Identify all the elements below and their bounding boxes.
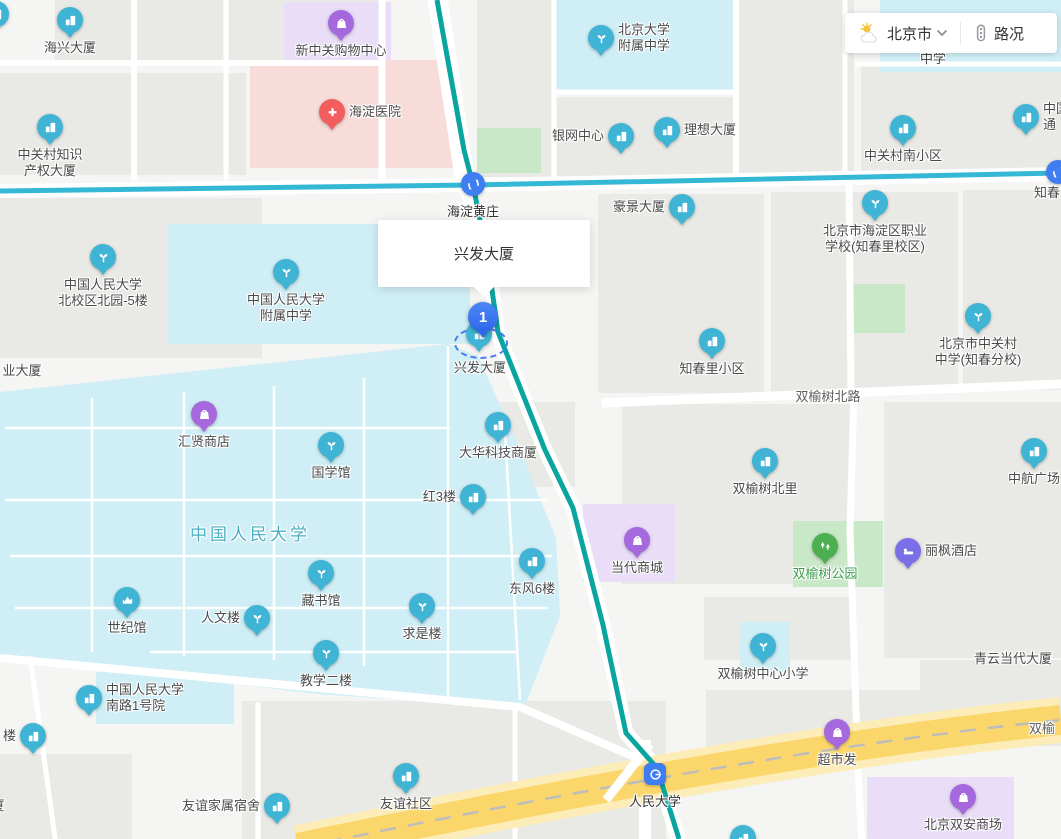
building-icon [1019, 110, 1034, 125]
park-icon [818, 539, 833, 554]
map-controls: 北京市 路况 [845, 13, 1057, 53]
haidian-vocational-school-pin[interactable] [862, 190, 888, 216]
shuangyushu-park-pin[interactable] [812, 533, 838, 559]
school-icon [324, 438, 339, 453]
building-icon [82, 691, 97, 706]
zhonghang-plaza-pin[interactable] [1021, 438, 1047, 464]
shuangyushu-beili-pin[interactable] [752, 448, 778, 474]
renwenlou-pin[interactable] [244, 605, 270, 631]
building-icon [736, 831, 751, 839]
building-icon [270, 799, 285, 814]
traffic-light-icon [973, 24, 989, 42]
haidian-hospital-pin[interactable] [319, 99, 345, 125]
school-icon [415, 599, 430, 614]
shop-icon [956, 790, 971, 805]
beijing-shuangan-mall-pin[interactable] [950, 784, 976, 810]
dangdai-mall-pin[interactable] [624, 527, 650, 553]
building-icon [1027, 444, 1042, 459]
jiaoxue-er-lou-pin[interactable] [313, 640, 339, 666]
weather-icon [857, 22, 881, 44]
building-icon [466, 490, 481, 505]
school-icon [314, 566, 329, 581]
school-icon [96, 250, 111, 265]
building-icon [896, 121, 911, 136]
building-icon [660, 123, 675, 138]
zgc-middle-school-zhichun-pin[interactable] [965, 303, 991, 329]
building-icon [525, 554, 540, 569]
divider [960, 22, 961, 44]
shop-icon [630, 533, 645, 548]
edge-building-topright-pin[interactable] [1013, 104, 1039, 130]
map[interactable]: 海兴大厦新中关购物中心海淀医院中关村知识产权大厦北京大学附属中学中学银网中心理想… [0, 0, 1061, 839]
hospital-icon [325, 105, 340, 120]
school-icon [250, 611, 265, 626]
school-icon [319, 646, 334, 661]
building-icon [63, 13, 78, 28]
building-icon [43, 120, 58, 135]
xinzhongguan-mall-pin[interactable] [328, 10, 354, 36]
building-icon [26, 729, 41, 744]
qiushilou-pin[interactable] [409, 593, 435, 619]
chaoshifa-pin[interactable] [824, 719, 850, 745]
haojing-daxia-pin[interactable] [669, 194, 695, 220]
school-icon [868, 196, 883, 211]
renmin-university-station-pin[interactable] [644, 763, 666, 785]
yinwang-center-pin[interactable] [608, 123, 634, 149]
lou-partial-pin[interactable] [20, 723, 46, 749]
dahua-tech-tower-pin[interactable] [485, 412, 511, 438]
youyi-family-dorm-pin[interactable] [264, 793, 290, 819]
ruc-north-campus-5-pin[interactable] [90, 244, 116, 270]
building-icon [0, 7, 4, 22]
pku-affiliated-hs-pin[interactable] [588, 25, 614, 51]
building-icon [675, 200, 690, 215]
hong-3-lou-pin[interactable] [460, 484, 486, 510]
xingfa-daxia-label: 兴发大厦 [454, 360, 506, 376]
building-icon [758, 454, 773, 469]
building-icon [399, 769, 414, 784]
haixing-daxia-pin[interactable] [57, 7, 83, 33]
school-icon [279, 265, 294, 280]
metro-station-icon [648, 767, 663, 782]
huixian-store-pin[interactable] [191, 401, 217, 427]
result-marker-1[interactable]: 1 [468, 302, 498, 332]
sys-central-primary-pin[interactable] [750, 633, 776, 659]
metro-interchange-icon [1051, 165, 1061, 180]
zgc-south-community-pin[interactable] [890, 115, 916, 141]
city-selector[interactable]: 北京市 [887, 23, 932, 44]
building-icon [705, 334, 720, 349]
ruc-south-road-1-pin[interactable] [76, 685, 102, 711]
chevron-down-icon[interactable] [936, 28, 948, 38]
shop-icon [197, 407, 212, 422]
building-icon [491, 418, 506, 433]
lifeng-hotel-pin[interactable] [895, 538, 921, 564]
stadium-icon [120, 593, 135, 608]
shijiguan-pin[interactable] [114, 587, 140, 613]
cangshuguan-pin[interactable] [308, 560, 334, 586]
metro-interchange-icon [466, 177, 481, 192]
youyi-community-pin[interactable] [393, 763, 419, 789]
ruc-affiliated-hs-pin[interactable] [273, 259, 299, 285]
guoxueguan-pin[interactable] [318, 432, 344, 458]
school-icon [971, 309, 986, 324]
poi-tooltip[interactable]: 兴发大厦 [378, 220, 590, 287]
shop-icon [830, 725, 845, 740]
lixiang-daxia-pin[interactable] [654, 117, 680, 143]
zhichunli-community-pin[interactable] [699, 328, 725, 354]
shop-icon [334, 16, 349, 31]
tooltip-title: 兴发大厦 [454, 243, 514, 264]
building-icon [614, 129, 629, 144]
hotel-icon [901, 544, 916, 559]
haidianhuangzhuang-station-pin[interactable] [461, 172, 485, 196]
traffic-toggle[interactable]: 路况 [994, 23, 1024, 44]
zgc-ip-tower-pin[interactable] [37, 114, 63, 140]
dongfeng-6-lou-pin[interactable] [519, 548, 545, 574]
school-icon [594, 31, 609, 46]
marker-number: 1 [479, 309, 487, 326]
school-icon [756, 639, 771, 654]
